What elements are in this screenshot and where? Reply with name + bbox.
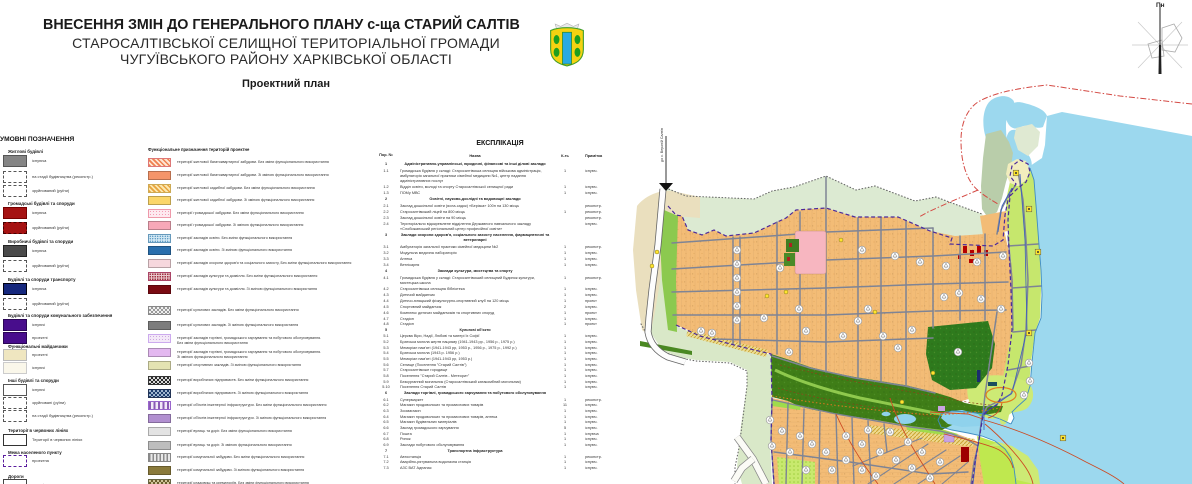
- svg-text:до с. Верхній Салтів: до с. Верхній Салтів: [660, 128, 664, 162]
